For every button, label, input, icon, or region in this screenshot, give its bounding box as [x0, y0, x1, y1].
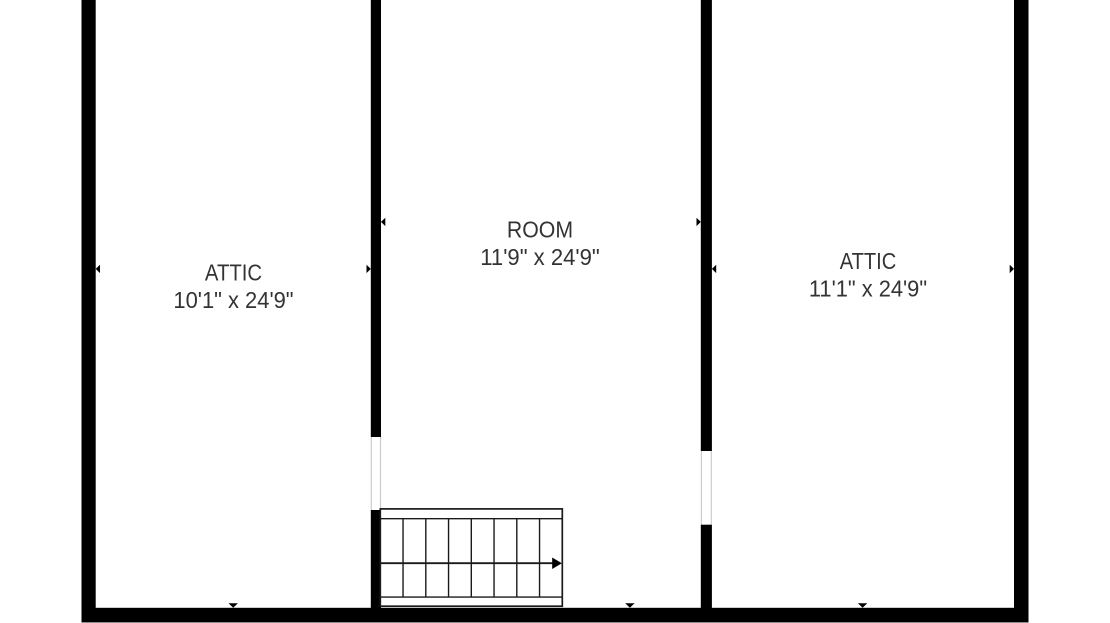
svg-text:ATTIC: ATTIC — [205, 260, 262, 286]
svg-text:10'1" x 24'9": 10'1" x 24'9" — [173, 287, 293, 313]
svg-text:11'9" x 24'9": 11'9" x 24'9" — [480, 244, 599, 270]
svg-text:11'1" x 24'9": 11'1" x 24'9" — [809, 276, 927, 302]
svg-text:ROOM: ROOM — [507, 217, 573, 243]
svg-text:ATTIC: ATTIC — [840, 248, 897, 274]
